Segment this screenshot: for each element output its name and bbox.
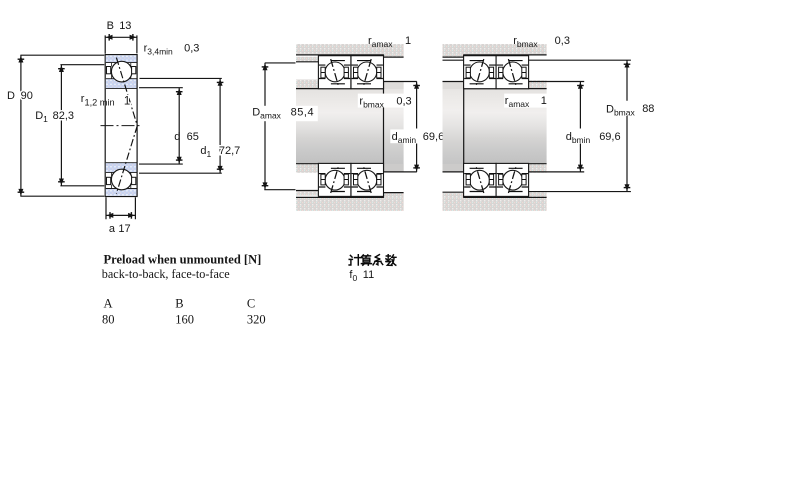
svg-text:back-to-back, face-to-face: back-to-back, face-to-face [102,267,230,281]
svg-text:f011: f011 [349,269,374,283]
svg-text:1: 1 [124,95,130,107]
svg-text:17: 17 [118,223,130,235]
svg-text:D: D [7,90,15,102]
svg-text:82,3: 82,3 [53,110,74,122]
svg-text:Preload when unmounted [N]: Preload when unmounted [N] [104,253,262,267]
svg-text:65: 65 [187,131,199,143]
svg-text:ramax1: ramax1 [368,35,411,49]
svg-text:d1: d1 [200,145,211,159]
svg-text:r3,4min0,3: r3,4min0,3 [144,43,200,57]
svg-text:72,7: 72,7 [219,145,240,157]
svg-text:320: 320 [247,312,266,326]
svg-text:80: 80 [102,312,115,326]
svg-text:d: d [174,131,180,143]
svg-text:13: 13 [119,20,131,32]
svg-text:A: A [104,296,113,310]
svg-text:69,6: 69,6 [423,131,444,143]
svg-text:160: 160 [175,312,194,326]
svg-text:B: B [175,296,183,310]
svg-text:B: B [107,20,114,32]
svg-text:90: 90 [21,90,33,102]
svg-text:88: 88 [642,103,654,115]
svg-text:a: a [109,223,116,235]
svg-text:69,6: 69,6 [599,131,620,143]
svg-text:C: C [247,296,255,310]
svg-text:D1: D1 [35,110,48,124]
svg-text:85,4: 85,4 [291,106,315,118]
svg-text:Dbmax: Dbmax [606,103,635,117]
